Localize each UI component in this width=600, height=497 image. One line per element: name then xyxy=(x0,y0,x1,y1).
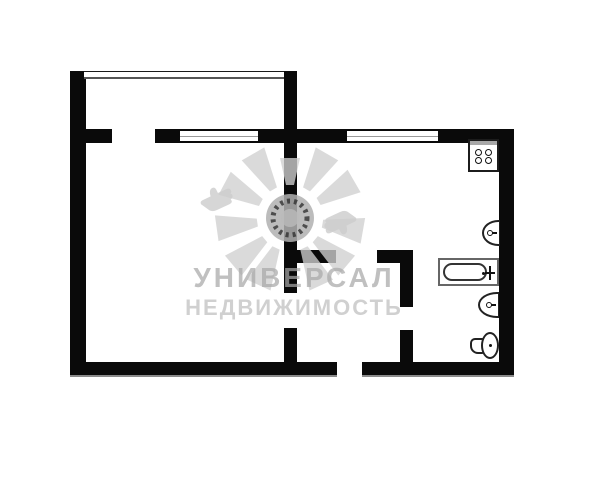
wall-balcony-block-mid xyxy=(155,129,180,143)
wall-right-outer xyxy=(499,129,514,375)
watermark-title: УНИВЕРСАЛ xyxy=(193,262,394,294)
stove-burner xyxy=(485,149,492,156)
stove-back-panel xyxy=(470,141,497,145)
bathtub-basin xyxy=(443,263,487,281)
wall-bathroom-lower xyxy=(400,330,413,362)
watermark-subtitle: НЕДВИЖИМОСТЬ xyxy=(185,295,403,321)
stove-burner xyxy=(475,157,482,164)
toilet-drain xyxy=(489,344,492,347)
wall-bottom-left xyxy=(70,362,337,377)
wall-balcony-block-left xyxy=(70,129,112,143)
floor-plan: УНИВЕРСАЛ НЕДВИЖИМОСТЬ xyxy=(0,0,600,497)
balcony-glazing-window xyxy=(84,71,285,79)
stove-burner xyxy=(485,157,492,164)
kitchen-sink-icon xyxy=(482,220,500,246)
drain-icon xyxy=(486,302,492,308)
stove-icon xyxy=(468,139,499,172)
bathtub-faucet xyxy=(485,272,495,274)
bathroom-sink-icon xyxy=(478,292,499,318)
wall-bottom-right xyxy=(362,362,514,377)
wall-left-outer xyxy=(70,71,86,375)
bathtub-icon xyxy=(438,258,499,286)
stove-burner xyxy=(475,149,482,156)
drain-icon xyxy=(487,230,493,236)
bathtub-drain xyxy=(482,272,485,275)
